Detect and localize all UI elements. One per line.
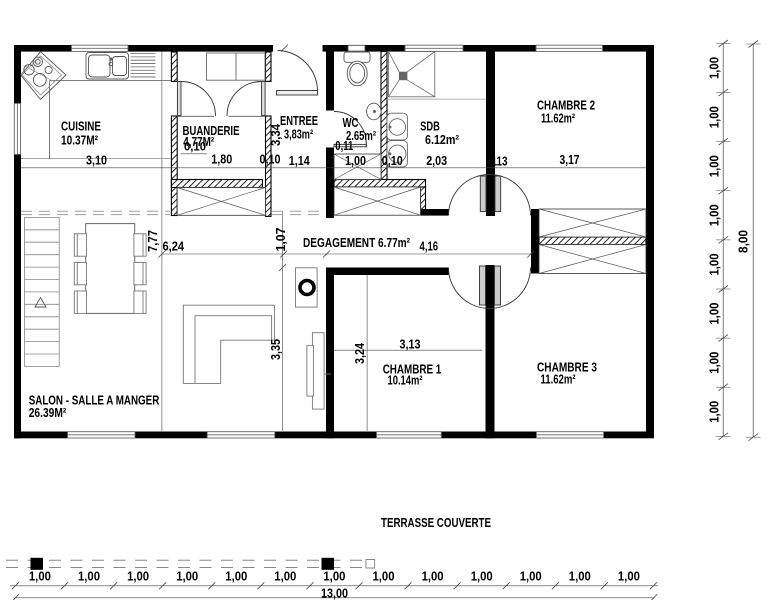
svg-text:113: 113 bbox=[492, 155, 508, 169]
svg-text:4,16: 4,16 bbox=[420, 240, 439, 254]
svg-text:1,00: 1,00 bbox=[323, 570, 345, 584]
svg-text:ENTREE: ENTREE bbox=[280, 113, 318, 128]
svg-text:0,11: 0,11 bbox=[335, 139, 353, 153]
svg-text:11.62m²: 11.62m² bbox=[541, 112, 575, 126]
svg-text:3,17: 3,17 bbox=[560, 153, 580, 167]
svg-text:11.62m²: 11.62m² bbox=[541, 373, 576, 387]
svg-text:26.39M²: 26.39M² bbox=[29, 406, 67, 420]
svg-text:1,00: 1,00 bbox=[78, 570, 100, 584]
svg-text:1,00: 1,00 bbox=[708, 401, 722, 423]
svg-text:1,00: 1,00 bbox=[274, 570, 296, 584]
svg-text:3,34: 3,34 bbox=[269, 124, 283, 146]
svg-text:0,10: 0,10 bbox=[382, 154, 403, 168]
svg-text:1,00: 1,00 bbox=[471, 570, 493, 584]
svg-text:1,00: 1,00 bbox=[345, 154, 366, 168]
svg-text:1,00: 1,00 bbox=[618, 570, 640, 584]
svg-text:TERRASSE COUVERTE: TERRASSE COUVERTE bbox=[381, 516, 491, 530]
svg-text:1,00: 1,00 bbox=[569, 570, 591, 584]
svg-text:1,00: 1,00 bbox=[520, 570, 542, 584]
svg-text:WC: WC bbox=[343, 115, 359, 130]
svg-text:10.37M²: 10.37M² bbox=[61, 134, 98, 148]
svg-text:3,83m²: 3,83m² bbox=[284, 128, 313, 142]
svg-text:8,00: 8,00 bbox=[737, 230, 751, 253]
svg-text:0,10: 0,10 bbox=[184, 140, 206, 154]
svg-text:SDB: SDB bbox=[420, 119, 440, 134]
svg-text:1,00: 1,00 bbox=[708, 303, 722, 325]
svg-text:1,00: 1,00 bbox=[708, 204, 722, 226]
svg-text:1,00: 1,00 bbox=[708, 155, 722, 177]
svg-text:1,00: 1,00 bbox=[127, 570, 149, 584]
svg-text:DEGAGEMENT 6.77m²: DEGAGEMENT 6.77m² bbox=[303, 235, 411, 250]
svg-text:1,00: 1,00 bbox=[225, 570, 247, 584]
svg-text:1,00: 1,00 bbox=[29, 570, 51, 584]
svg-text:13,00: 13,00 bbox=[321, 587, 348, 600]
svg-text:1,00: 1,00 bbox=[422, 570, 444, 584]
svg-text:1,00: 1,00 bbox=[708, 57, 722, 79]
svg-text:0,10: 0,10 bbox=[260, 153, 281, 167]
svg-text:CHAMBRE 2: CHAMBRE 2 bbox=[537, 98, 595, 113]
svg-text:1,00: 1,00 bbox=[176, 570, 198, 584]
svg-text:3,24: 3,24 bbox=[353, 343, 367, 364]
svg-text:CUISINE: CUISINE bbox=[61, 119, 101, 134]
svg-text:3,10: 3,10 bbox=[86, 154, 107, 168]
svg-text:7,77: 7,77 bbox=[146, 230, 160, 252]
svg-text:1,00: 1,00 bbox=[708, 106, 722, 128]
svg-text:1,07: 1,07 bbox=[274, 227, 288, 251]
svg-text:1,14: 1,14 bbox=[289, 154, 310, 168]
svg-text:1,00: 1,00 bbox=[373, 570, 395, 584]
svg-text:1,80: 1,80 bbox=[211, 153, 232, 167]
svg-text:2,03: 2,03 bbox=[426, 154, 447, 168]
svg-text:1,00: 1,00 bbox=[708, 352, 722, 374]
svg-text:3,13: 3,13 bbox=[400, 338, 421, 352]
svg-text:6,24: 6,24 bbox=[163, 240, 185, 254]
svg-text:3,35: 3,35 bbox=[269, 339, 283, 360]
svg-text:6.12m²: 6.12m² bbox=[425, 133, 459, 147]
svg-text:10.14m²: 10.14m² bbox=[388, 374, 423, 388]
svg-text:1,00: 1,00 bbox=[708, 253, 722, 275]
